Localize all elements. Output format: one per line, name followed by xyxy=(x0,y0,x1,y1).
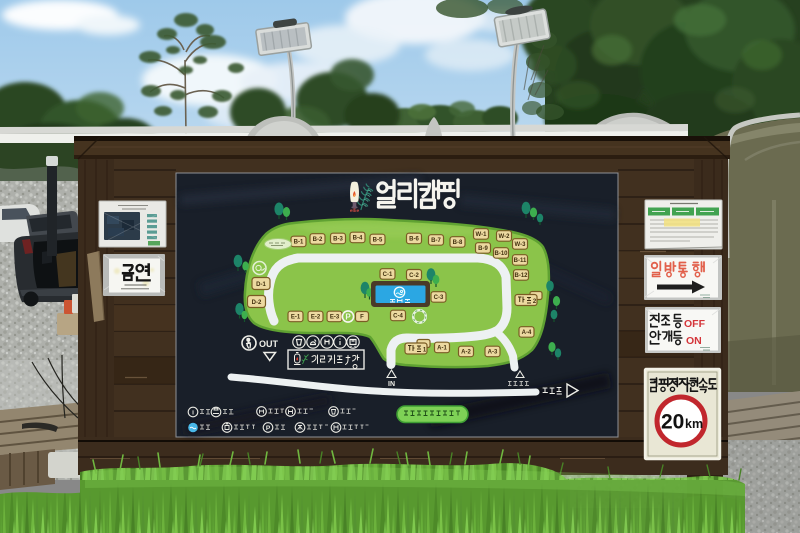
svg-text:B-8: B-8 xyxy=(453,240,463,246)
svg-text:B-1: B-1 xyxy=(294,240,304,246)
svg-text:A-4: A-4 xyxy=(522,330,532,336)
svg-text:A-1: A-1 xyxy=(437,346,447,352)
svg-text:IN: IN xyxy=(388,381,395,388)
svg-text:20: 20 xyxy=(661,411,684,434)
svg-text:A-2: A-2 xyxy=(461,350,471,356)
svg-text:OFF: OFF xyxy=(684,318,706,330)
svg-text:C-1: C-1 xyxy=(383,272,393,278)
svg-text:B-2: B-2 xyxy=(313,237,323,243)
svg-text:C-3: C-3 xyxy=(434,295,444,301)
svg-text:P: P xyxy=(266,425,271,432)
svg-text:A-3: A-3 xyxy=(488,350,498,356)
svg-text:P: P xyxy=(345,313,351,322)
svg-text:B-6: B-6 xyxy=(409,237,419,243)
svg-text:B-4: B-4 xyxy=(353,236,363,242)
svg-text:E-2: E-2 xyxy=(311,315,321,321)
svg-text:D-1: D-1 xyxy=(256,282,266,288)
svg-text:C-2: C-2 xyxy=(409,273,419,279)
svg-text:D-2: D-2 xyxy=(252,300,262,306)
svg-text:W-1: W-1 xyxy=(476,232,488,238)
svg-text:OUT: OUT xyxy=(259,339,279,349)
svg-text:C-4: C-4 xyxy=(393,314,403,320)
svg-text:W-3: W-3 xyxy=(515,242,527,248)
svg-text:B-5: B-5 xyxy=(373,238,383,244)
svg-text:ellie: ellie xyxy=(350,208,360,214)
svg-text:B-3: B-3 xyxy=(333,237,343,243)
svg-text:B-11: B-11 xyxy=(514,258,527,264)
svg-text:E-3: E-3 xyxy=(330,315,340,321)
svg-text:B-12: B-12 xyxy=(514,273,528,279)
svg-text:B-10: B-10 xyxy=(494,251,508,257)
svg-text:i: i xyxy=(192,410,194,417)
svg-text:W-2: W-2 xyxy=(499,234,511,240)
svg-text:B-9: B-9 xyxy=(478,246,488,252)
svg-text:ON: ON xyxy=(686,335,702,347)
svg-text:F: F xyxy=(360,315,364,321)
svg-text:km: km xyxy=(685,417,703,431)
svg-text:B-7: B-7 xyxy=(431,238,441,244)
svg-text:E-1: E-1 xyxy=(291,315,301,321)
